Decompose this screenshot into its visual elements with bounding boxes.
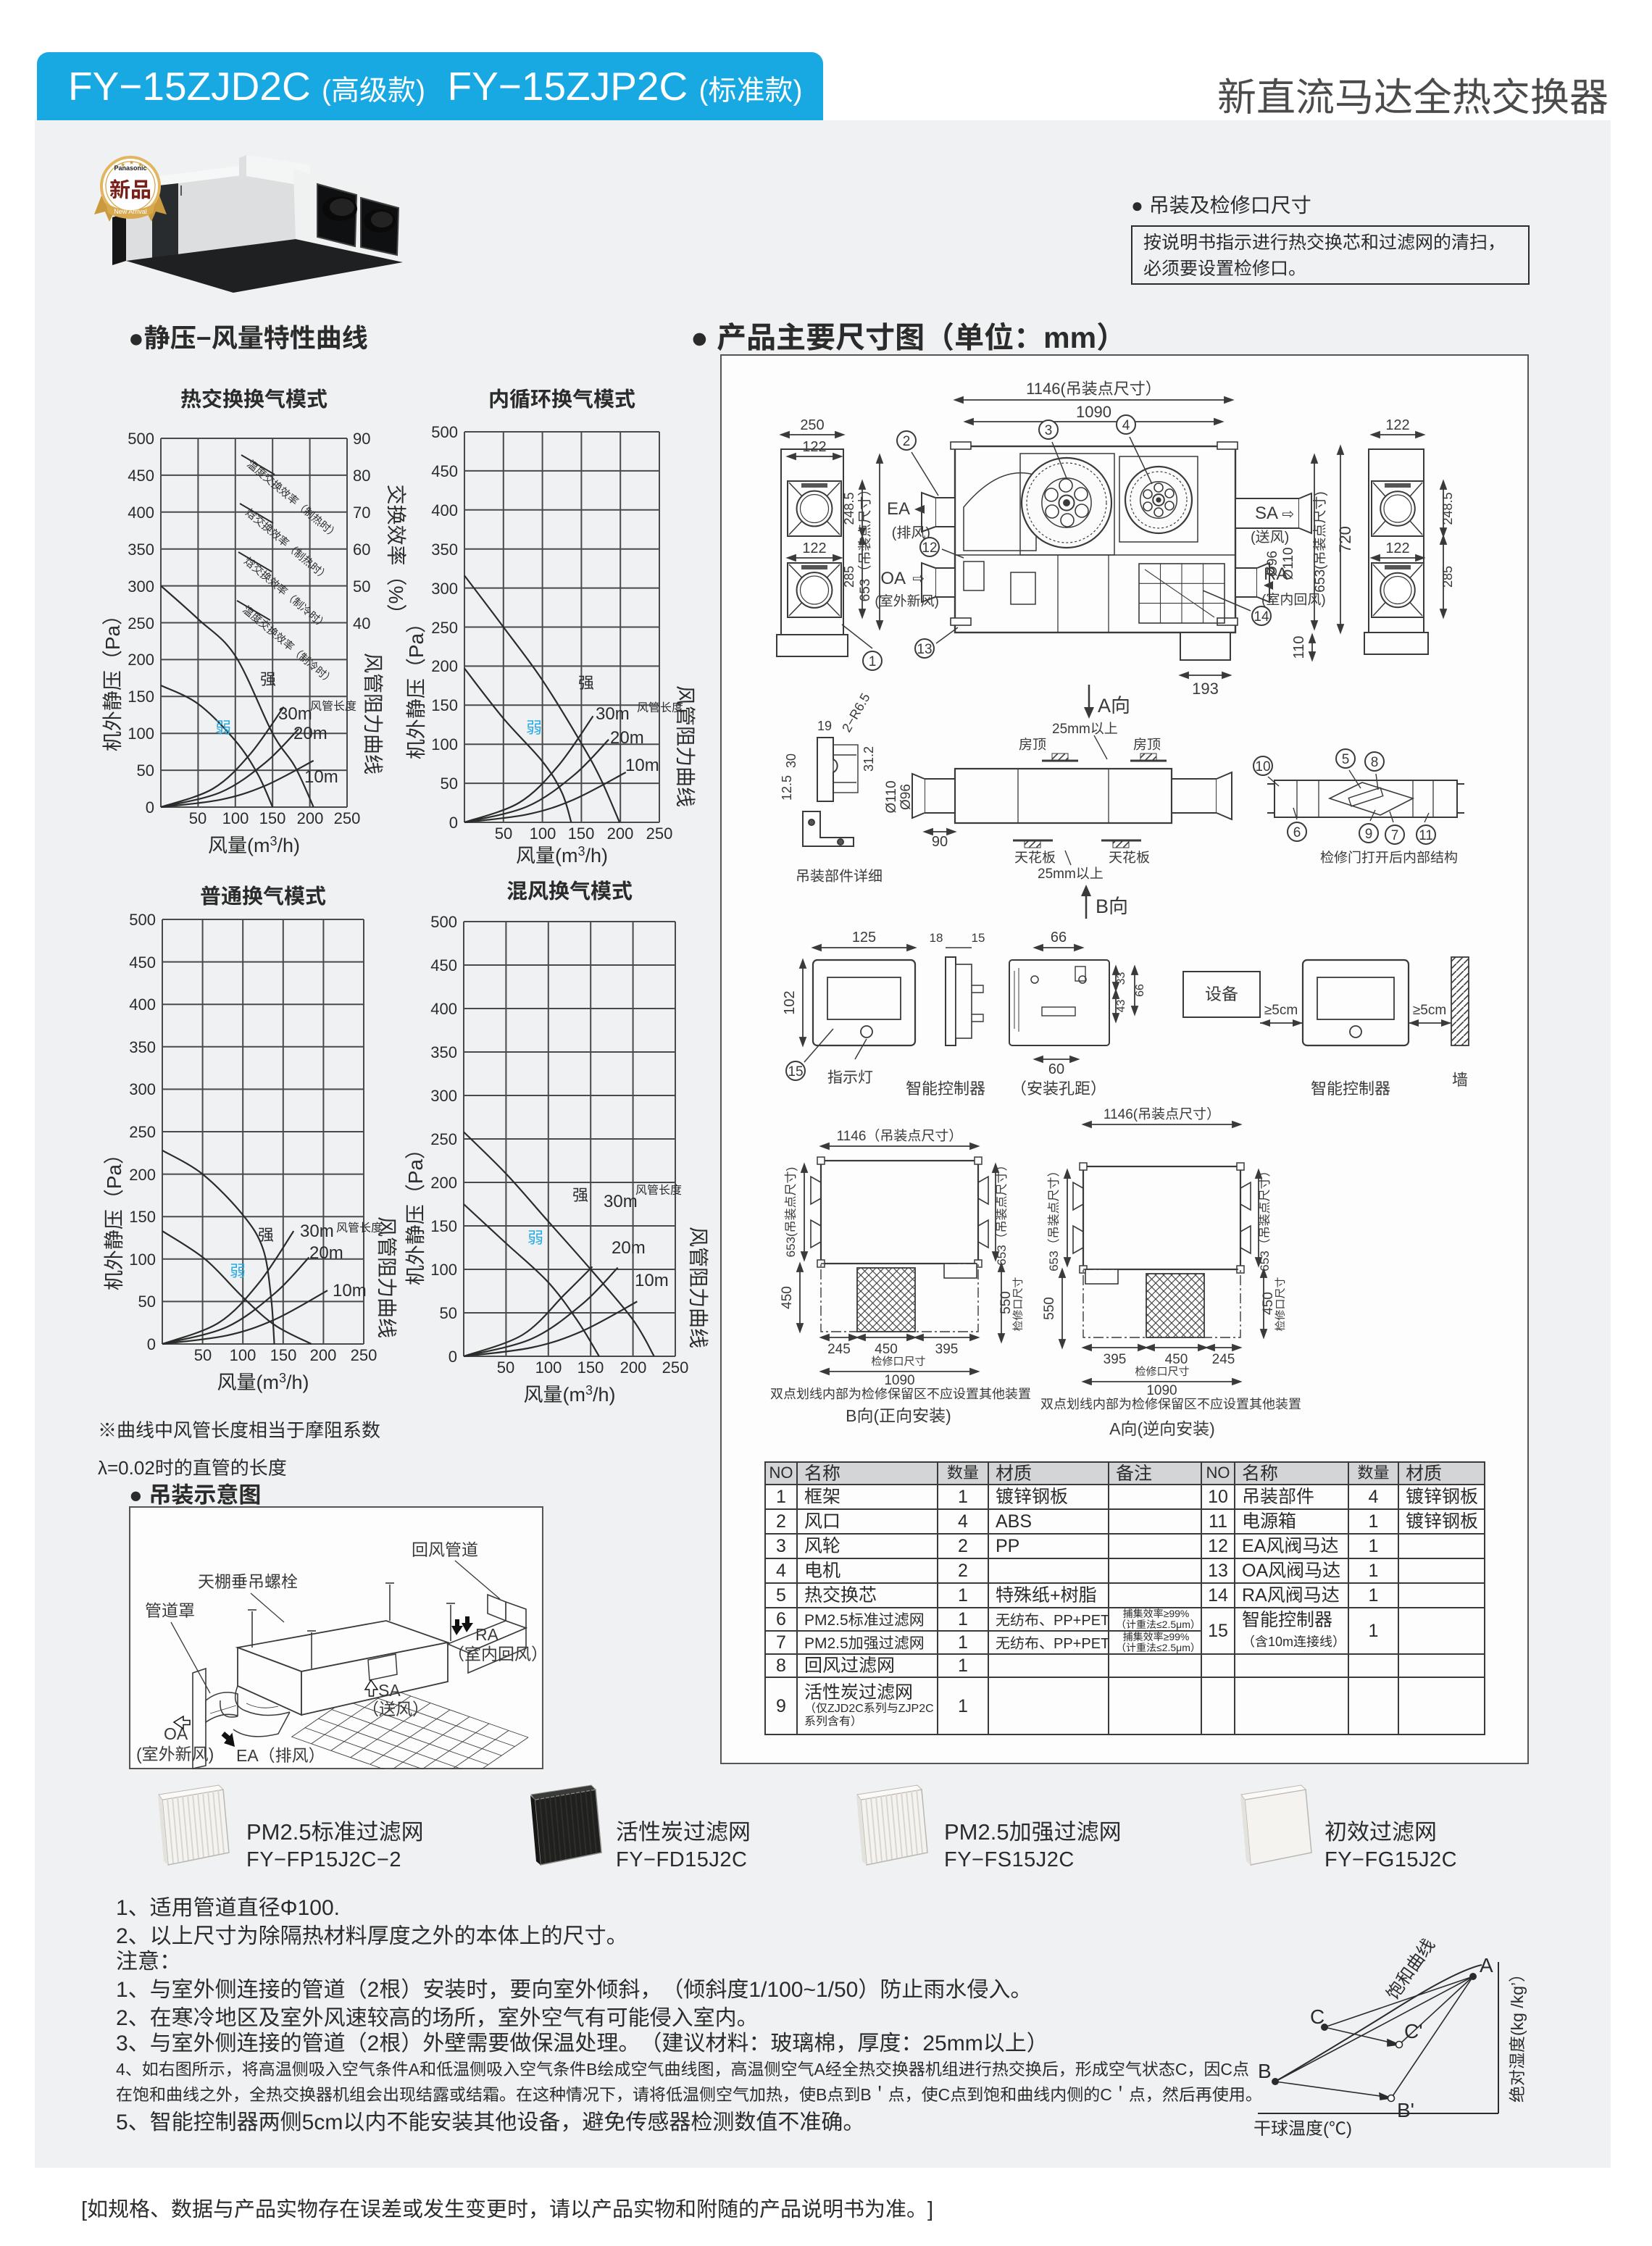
svg-text:13: 13 bbox=[917, 642, 932, 657]
svg-text:90: 90 bbox=[932, 834, 948, 850]
svg-text:200: 200 bbox=[607, 824, 634, 843]
svg-text:11: 11 bbox=[1419, 828, 1433, 843]
svg-text:2−R6.5: 2−R6.5 bbox=[839, 690, 873, 735]
svg-text:内循环换气模式: 内循环换气模式 bbox=[488, 388, 635, 412]
svg-text:9: 9 bbox=[1365, 827, 1373, 842]
svg-text:125: 125 bbox=[852, 930, 876, 945]
svg-text:350: 350 bbox=[430, 1043, 457, 1061]
svg-text:400: 400 bbox=[431, 501, 458, 519]
svg-text:450: 450 bbox=[1261, 1292, 1276, 1315]
svg-text:干球温度(℃): 干球温度(℃) bbox=[1253, 2119, 1352, 2139]
svg-text:Ø96: Ø96 bbox=[898, 784, 914, 810]
svg-text:250: 250 bbox=[800, 417, 824, 433]
svg-text:150: 150 bbox=[128, 688, 154, 706]
svg-text:(送风): (送风) bbox=[1251, 530, 1289, 546]
svg-text:20m: 20m bbox=[610, 728, 644, 748]
svg-text:150: 150 bbox=[430, 1217, 457, 1235]
svg-text:B向: B向 bbox=[1096, 896, 1128, 917]
svg-text:检修门打开后内部结构: 检修门打开后内部结构 bbox=[1320, 850, 1458, 866]
svg-text:50: 50 bbox=[138, 1293, 156, 1311]
svg-text:10m: 10m bbox=[304, 767, 338, 787]
svg-text:50: 50 bbox=[194, 1346, 212, 1364]
svg-text:30m: 30m bbox=[278, 704, 312, 724]
svg-text:250: 250 bbox=[129, 1123, 156, 1141]
svg-text:墙: 墙 bbox=[1452, 1071, 1468, 1089]
svg-text:房顶: 房顶 bbox=[1019, 738, 1046, 753]
svg-text:设备: 设备 bbox=[1205, 985, 1238, 1003]
svg-text:机外静压（Pa）: 机外静压（Pa） bbox=[405, 613, 427, 759]
svg-text:0: 0 bbox=[449, 1348, 457, 1366]
svg-text:395: 395 bbox=[935, 1342, 959, 1357]
svg-text:500: 500 bbox=[128, 430, 154, 448]
svg-text:50: 50 bbox=[353, 577, 370, 596]
svg-text:15: 15 bbox=[972, 931, 985, 945]
svg-text:70: 70 bbox=[353, 504, 370, 522]
svg-text:SA ⇨: SA ⇨ bbox=[1255, 504, 1294, 523]
svg-text:B: B bbox=[1258, 2060, 1272, 2082]
svg-text:122: 122 bbox=[1385, 417, 1409, 433]
svg-text:122: 122 bbox=[1385, 540, 1409, 556]
svg-text:风管阻力曲线: 风管阻力曲线 bbox=[687, 1227, 709, 1348]
svg-text:1090: 1090 bbox=[1076, 403, 1111, 421]
svg-text:RA: RA bbox=[475, 1625, 499, 1644]
svg-text:450: 450 bbox=[780, 1286, 795, 1309]
svg-text:450: 450 bbox=[129, 953, 156, 972]
svg-text:强: 强 bbox=[260, 670, 276, 688]
svg-text:122: 122 bbox=[802, 439, 826, 455]
svg-text:100: 100 bbox=[430, 1261, 457, 1279]
svg-text:248.5: 248.5 bbox=[842, 492, 856, 525]
svg-text:7: 7 bbox=[1391, 828, 1399, 843]
svg-text:弱: 弱 bbox=[527, 1229, 543, 1247]
svg-text:250: 250 bbox=[662, 1358, 689, 1377]
svg-text:653（吊装点尺寸）: 653（吊装点尺寸） bbox=[1047, 1164, 1061, 1271]
svg-text:150: 150 bbox=[270, 1346, 297, 1364]
svg-text:90: 90 bbox=[353, 430, 370, 448]
svg-text:12: 12 bbox=[922, 540, 937, 556]
svg-text:500: 500 bbox=[431, 423, 458, 441]
svg-text:400: 400 bbox=[129, 995, 156, 1014]
svg-text:普通换气模式: 普通换气模式 bbox=[200, 885, 326, 909]
svg-text:50: 50 bbox=[495, 824, 512, 843]
svg-text:1090: 1090 bbox=[1146, 1383, 1177, 1398]
svg-text:6: 6 bbox=[1293, 825, 1301, 840]
svg-text:（送风）: （送风） bbox=[362, 1700, 429, 1719]
svg-text:强: 强 bbox=[578, 674, 594, 692]
svg-text:20m: 20m bbox=[293, 724, 328, 743]
svg-text:热交换换气模式: 热交换换气模式 bbox=[180, 388, 328, 412]
svg-text:OA: OA bbox=[880, 569, 906, 588]
svg-text:风管阻力曲线: 风管阻力曲线 bbox=[362, 653, 384, 775]
svg-text:110: 110 bbox=[1291, 636, 1307, 659]
svg-text:31.2: 31.2 bbox=[862, 746, 876, 772]
svg-text:A: A bbox=[1480, 1954, 1493, 1976]
svg-text:450: 450 bbox=[128, 467, 154, 485]
svg-text:653（吊装点尺寸）: 653（吊装点尺寸） bbox=[1258, 1164, 1272, 1271]
svg-text:房顶: 房顶 bbox=[1133, 738, 1161, 753]
svg-text:C': C' bbox=[1404, 2020, 1423, 2042]
svg-text:18: 18 bbox=[930, 931, 943, 945]
svg-text:245: 245 bbox=[827, 1342, 851, 1357]
svg-text:智能控制器: 智能控制器 bbox=[906, 1080, 985, 1098]
svg-text:653（吊装点尺寸）: 653（吊装点尺寸） bbox=[857, 483, 873, 602]
svg-text:（室内回风）: （室内回风） bbox=[448, 1645, 543, 1663]
svg-text:150: 150 bbox=[568, 824, 595, 843]
svg-text:≥5cm: ≥5cm bbox=[1264, 1003, 1298, 1018]
svg-text:★: ★ bbox=[120, 162, 125, 168]
svg-text:天花板: 天花板 bbox=[1109, 851, 1150, 866]
svg-text:4: 4 bbox=[1122, 418, 1130, 433]
svg-text:193: 193 bbox=[1192, 680, 1219, 698]
svg-text:250: 250 bbox=[128, 614, 154, 633]
svg-text:550: 550 bbox=[998, 1291, 1014, 1314]
svg-text:50: 50 bbox=[189, 809, 206, 827]
svg-text:100: 100 bbox=[431, 735, 458, 753]
svg-text:吊装部件详细: 吊装部件详细 bbox=[796, 869, 883, 885]
svg-text:C: C bbox=[1310, 2005, 1324, 2028]
svg-text:80: 80 bbox=[353, 467, 370, 485]
svg-text:A向(逆向安装): A向(逆向安装) bbox=[1109, 1419, 1215, 1438]
svg-text:250: 250 bbox=[646, 824, 673, 843]
svg-text:100: 100 bbox=[129, 1251, 156, 1269]
svg-text:150: 150 bbox=[431, 696, 458, 714]
svg-text:检修口尺寸: 检修口尺寸 bbox=[1275, 1277, 1287, 1331]
svg-text:300: 300 bbox=[431, 580, 458, 598]
svg-text:20m: 20m bbox=[309, 1243, 343, 1263]
svg-text:245: 245 bbox=[1212, 1352, 1235, 1367]
svg-text:450: 450 bbox=[431, 462, 458, 480]
svg-text:350: 350 bbox=[128, 540, 154, 559]
svg-text:1090: 1090 bbox=[884, 1373, 914, 1388]
svg-text:(室外新风): (室外新风) bbox=[136, 1745, 214, 1763]
svg-text:(室外新风): (室外新风) bbox=[875, 593, 939, 609]
svg-text:50: 50 bbox=[137, 761, 154, 780]
svg-text:30m: 30m bbox=[300, 1222, 334, 1241]
svg-text:（安装孔距）: （安装孔距） bbox=[1011, 1080, 1106, 1098]
svg-text:500: 500 bbox=[430, 913, 457, 931]
svg-text:300: 300 bbox=[128, 577, 154, 596]
svg-text:100: 100 bbox=[222, 809, 249, 827]
svg-text:1: 1 bbox=[869, 654, 877, 669]
svg-text:285: 285 bbox=[842, 566, 856, 588]
svg-text:≥5cm: ≥5cm bbox=[1413, 1003, 1446, 1018]
svg-text:10m: 10m bbox=[333, 1281, 367, 1301]
svg-text:指示灯: 指示灯 bbox=[827, 1069, 873, 1086]
svg-text:Ø96: Ø96 bbox=[1265, 551, 1280, 577]
svg-text:强: 强 bbox=[258, 1226, 274, 1244]
svg-text:50: 50 bbox=[440, 1304, 457, 1322]
svg-text:双点划线内部为检修保留区不应设置其他装置: 双点划线内部为检修保留区不应设置其他装置 bbox=[770, 1387, 1031, 1401]
svg-text:100: 100 bbox=[530, 824, 556, 843]
svg-text:双点划线内部为检修保留区不应设置其他装置: 双点划线内部为检修保留区不应设置其他装置 bbox=[1040, 1397, 1301, 1411]
svg-text:150: 150 bbox=[259, 809, 286, 827]
svg-text:管道罩: 管道罩 bbox=[145, 1601, 195, 1620]
svg-text:395: 395 bbox=[1104, 1352, 1127, 1367]
svg-text:250: 250 bbox=[351, 1346, 377, 1364]
svg-text:25mm以上: 25mm以上 bbox=[1038, 867, 1104, 882]
svg-text:400: 400 bbox=[128, 504, 154, 522]
svg-text:248.5: 248.5 bbox=[1440, 492, 1455, 525]
svg-text:200: 200 bbox=[128, 651, 154, 669]
svg-text:550: 550 bbox=[1042, 1297, 1057, 1320]
svg-text:250: 250 bbox=[334, 809, 361, 827]
svg-text:风管长度: 风管长度 bbox=[336, 1222, 383, 1235]
svg-text:200: 200 bbox=[310, 1346, 337, 1364]
svg-text:机外静压（Pa）: 机外静压（Pa） bbox=[103, 1144, 125, 1290]
svg-text:450: 450 bbox=[1165, 1352, 1188, 1367]
svg-text:EA: EA bbox=[887, 499, 910, 519]
svg-text:200: 200 bbox=[297, 809, 324, 827]
svg-text:风量(m3/h): 风量(m3/h) bbox=[217, 1371, 309, 1393]
svg-text:66: 66 bbox=[1134, 984, 1146, 997]
svg-text:50: 50 bbox=[441, 775, 458, 793]
svg-text:风管长度: 风管长度 bbox=[310, 700, 356, 713]
svg-text:150: 150 bbox=[577, 1358, 604, 1377]
svg-text:350: 350 bbox=[431, 540, 458, 559]
svg-text:★: ★ bbox=[138, 162, 143, 168]
svg-text:43: 43 bbox=[1115, 1000, 1127, 1013]
svg-text:102: 102 bbox=[782, 990, 798, 1014]
svg-text:回风管道: 回风管道 bbox=[412, 1540, 478, 1559]
svg-text:100: 100 bbox=[128, 725, 154, 743]
svg-text:B': B' bbox=[1397, 2099, 1414, 2121]
svg-text:50: 50 bbox=[497, 1358, 514, 1377]
svg-text:19: 19 bbox=[817, 719, 832, 733]
svg-text:弱: 弱 bbox=[215, 719, 231, 737]
svg-text:653（吊装点尺寸）: 653（吊装点尺寸） bbox=[995, 1159, 1009, 1265]
svg-text:2: 2 bbox=[903, 434, 911, 449]
svg-text:122: 122 bbox=[802, 540, 826, 556]
svg-text:10m: 10m bbox=[635, 1271, 669, 1290]
svg-text:机外静压（Pa）: 机外静压（Pa） bbox=[101, 605, 124, 751]
svg-text:机外静压（Pa）: 机外静压（Pa） bbox=[404, 1139, 427, 1285]
svg-text:1146(吊装点尺寸）: 1146(吊装点尺寸） bbox=[1104, 1106, 1220, 1122]
svg-text:100: 100 bbox=[535, 1358, 562, 1377]
svg-text:653(吊装点尺寸): 653(吊装点尺寸) bbox=[1313, 491, 1328, 592]
svg-text:10m: 10m bbox=[625, 756, 659, 775]
svg-text:智能控制器: 智能控制器 bbox=[1311, 1080, 1390, 1098]
svg-text:OA: OA bbox=[164, 1724, 188, 1743]
svg-text:风管长度: 风管长度 bbox=[635, 1184, 682, 1197]
svg-text:30m: 30m bbox=[596, 704, 630, 724]
svg-text:100: 100 bbox=[230, 1346, 256, 1364]
svg-text:300: 300 bbox=[430, 1087, 457, 1105]
svg-text:混风换气模式: 混风换气模式 bbox=[506, 880, 633, 903]
svg-text:250: 250 bbox=[431, 619, 458, 637]
svg-text:150: 150 bbox=[129, 1208, 156, 1226]
svg-text:天花板: 天花板 bbox=[1014, 851, 1056, 866]
svg-text:3: 3 bbox=[1045, 423, 1053, 438]
svg-text:★: ★ bbox=[129, 159, 134, 166]
svg-text:33: 33 bbox=[1115, 972, 1127, 985]
svg-text:SA: SA bbox=[378, 1681, 401, 1700]
svg-text:350: 350 bbox=[129, 1038, 156, 1056]
svg-text:弱: 弱 bbox=[526, 719, 542, 737]
svg-text:检修口尺寸: 检修口尺寸 bbox=[871, 1356, 925, 1368]
svg-text:20m: 20m bbox=[612, 1238, 646, 1258]
svg-text:300: 300 bbox=[129, 1080, 156, 1098]
svg-text:720: 720 bbox=[1336, 526, 1354, 553]
svg-text:1146(吊装点尺寸）: 1146(吊装点尺寸） bbox=[1026, 380, 1161, 398]
svg-text:15: 15 bbox=[788, 1064, 803, 1080]
svg-text:8: 8 bbox=[1371, 755, 1379, 770]
svg-text:新品: 新品 bbox=[109, 179, 151, 202]
svg-text:200: 200 bbox=[430, 1174, 457, 1192]
svg-text:200: 200 bbox=[129, 1166, 156, 1184]
svg-text:5: 5 bbox=[1342, 752, 1350, 767]
svg-text:强: 强 bbox=[572, 1186, 588, 1204]
svg-text:285: 285 bbox=[1440, 566, 1455, 588]
svg-text:风管长度: 风管长度 bbox=[637, 701, 683, 714]
svg-text:(室内回风): (室内回风) bbox=[1261, 592, 1326, 608]
svg-text:检修口尺寸: 检修口尺寸 bbox=[1135, 1366, 1189, 1378]
svg-text:14: 14 bbox=[1253, 609, 1269, 625]
svg-text:B向(正向安装): B向(正向安装) bbox=[846, 1406, 951, 1425]
svg-text:10: 10 bbox=[1255, 759, 1270, 775]
svg-text:1146（吊装点尺寸）: 1146（吊装点尺寸） bbox=[837, 1128, 963, 1144]
svg-text:风量(m3/h): 风量(m3/h) bbox=[208, 834, 300, 856]
svg-text:绝对湿度(kg /kg’）: 绝对湿度(kg /kg’） bbox=[1508, 1966, 1527, 2103]
svg-text:66: 66 bbox=[1051, 930, 1067, 945]
svg-text:40: 40 bbox=[353, 614, 370, 633]
svg-text:Ø110: Ø110 bbox=[1281, 547, 1296, 580]
svg-text:0: 0 bbox=[146, 798, 154, 817]
svg-text:A向: A向 bbox=[1098, 695, 1130, 717]
svg-text:0: 0 bbox=[147, 1335, 156, 1353]
svg-text:New Arrival: New Arrival bbox=[114, 208, 147, 215]
svg-text:30: 30 bbox=[784, 753, 798, 768]
svg-text:250: 250 bbox=[430, 1130, 457, 1148]
svg-text:200: 200 bbox=[620, 1358, 647, 1377]
svg-text:弱: 弱 bbox=[230, 1262, 246, 1280]
svg-text:风量(m3/h): 风量(m3/h) bbox=[523, 1383, 615, 1406]
svg-text:12.5: 12.5 bbox=[780, 775, 794, 801]
svg-text:天棚垂吊螺栓: 天棚垂吊螺栓 bbox=[198, 1572, 298, 1591]
svg-text:60: 60 bbox=[353, 540, 370, 559]
svg-text:500: 500 bbox=[129, 911, 156, 929]
svg-text:400: 400 bbox=[430, 1000, 457, 1018]
svg-text:200: 200 bbox=[431, 657, 458, 675]
svg-text:⇨: ⇨ bbox=[912, 571, 925, 587]
svg-text:饱和曲线: 饱和曲线 bbox=[1383, 1935, 1439, 2003]
svg-text:60: 60 bbox=[1048, 1061, 1064, 1077]
svg-text:450: 450 bbox=[430, 956, 457, 974]
svg-text:653(吊装点尺寸): 653(吊装点尺寸) bbox=[784, 1167, 798, 1258]
svg-text:EA（排风）: EA（排风） bbox=[236, 1746, 325, 1765]
svg-text:0: 0 bbox=[449, 814, 458, 832]
svg-text:25mm以上: 25mm以上 bbox=[1052, 722, 1118, 737]
svg-text:检修口尺寸: 检修口尺寸 bbox=[1012, 1277, 1025, 1331]
svg-text:Ø110: Ø110 bbox=[884, 780, 899, 813]
svg-text:30m: 30m bbox=[604, 1192, 638, 1211]
svg-text:450: 450 bbox=[875, 1342, 898, 1357]
